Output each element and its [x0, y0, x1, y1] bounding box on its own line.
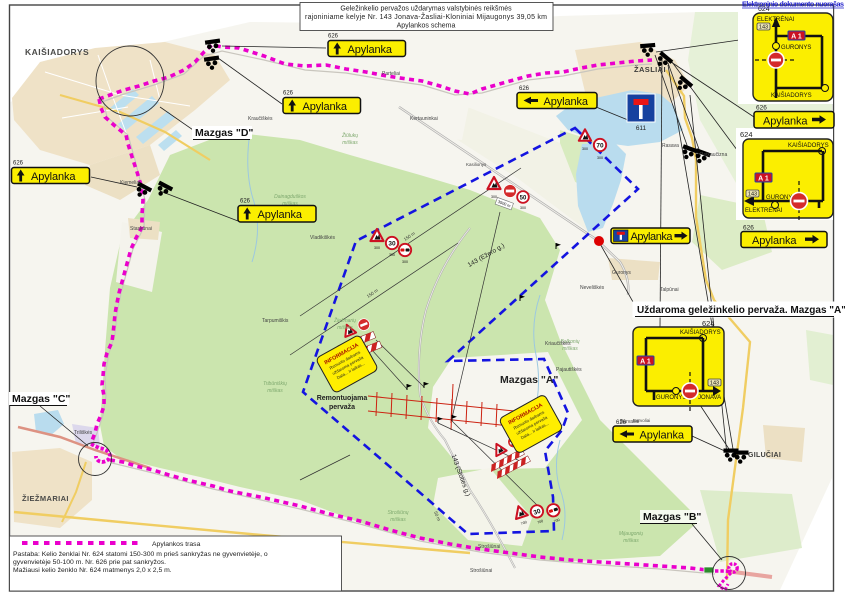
svg-text:Mažiausi kelio ženklo Nr. 624: Mažiausi kelio ženklo Nr. 624 matmenys 2… [13, 567, 172, 574]
svg-text:Geležinkelio pervažos uždaryma: Geležinkelio pervažos uždarymas valstybi… [340, 6, 512, 13]
svg-text:Triliškės: Triliškės [74, 430, 93, 436]
svg-text:626: 626 [519, 86, 530, 92]
svg-text:KAIŠIADORYS: KAIŠIADORYS [771, 92, 812, 99]
svg-text:Apylanka: Apylanka [640, 429, 685, 441]
svg-text:70: 70 [596, 143, 604, 150]
svg-text:50: 50 [520, 196, 527, 202]
svg-text:Strošiūnų: Strošiūnų [387, 510, 408, 516]
svg-text:300: 300 [402, 260, 408, 264]
svg-text:300: 300 [374, 246, 380, 250]
svg-text:KAIŠIADORYS: KAIŠIADORYS [680, 329, 721, 336]
svg-text:Kasilionys: Kasilionys [466, 162, 487, 167]
svg-text:626: 626 [756, 105, 767, 112]
svg-text:300: 300 [582, 147, 588, 151]
svg-text:KAIŠIADORYS: KAIŠIADORYS [25, 46, 89, 57]
svg-text:Apylanka: Apylanka [752, 235, 797, 247]
svg-text:Mazgas "A": Mazgas "A" [500, 374, 558, 386]
svg-text:Žiūlukų: Žiūlukų [341, 131, 358, 139]
svg-text:Tarpumiškis: Tarpumiškis [262, 318, 289, 324]
svg-text:ELEKTRĖNAI: ELEKTRĖNAI [745, 207, 783, 214]
svg-text:Mazgas "B": Mazgas "B" [643, 511, 701, 523]
svg-text:GURONYS: GURONYS [656, 395, 686, 401]
svg-text:Mazgas "C": Mazgas "C" [12, 393, 70, 405]
svg-text:143: 143 [710, 381, 719, 387]
svg-text:Pastaba: Kelio ženklai Nr. 624: Pastaba: Kelio ženklai Nr. 624 statomi 1… [13, 551, 268, 558]
svg-text:ŽASLIAI: ŽASLIAI [634, 65, 666, 74]
svg-text:Parteliai: Parteliai [382, 71, 400, 77]
svg-text:Kiemeliai: Kiemeliai [120, 180, 140, 186]
svg-text:Mijaugonių: Mijaugonių [619, 531, 643, 537]
svg-text:300: 300 [520, 206, 526, 210]
svg-text:miškas: miškas [342, 140, 358, 146]
svg-text:gyvenvietėje 50-100 m. Nr. 626: gyvenvietėje 50-100 m. Nr. 626 prie pat … [13, 559, 166, 566]
svg-text:624: 624 [740, 130, 753, 139]
svg-text:miškas: miškas [623, 538, 639, 544]
svg-text:Dainagduškos: Dainagduškos [274, 194, 306, 200]
svg-text:Mazgas "D": Mazgas "D" [195, 127, 253, 139]
svg-text:626: 626 [240, 199, 251, 205]
svg-text:miškas: miškas [267, 388, 283, 394]
svg-text:Strošiūnai: Strošiūnai [470, 568, 492, 574]
svg-text:Žiežmarių: Žiežmarių [333, 316, 356, 324]
svg-text:Rasava: Rasava [662, 143, 679, 149]
svg-text:A 1: A 1 [758, 176, 769, 183]
svg-text:Apylanka: Apylanka [303, 101, 348, 113]
svg-text:GURONYS: GURONYS [781, 45, 811, 51]
svg-text:Pajautiškės: Pajautiškės [556, 367, 582, 373]
svg-text:rajoniniame kelyje Nr. 143 Jon: rajoniniame kelyje Nr. 143 Jonava-Žaslia… [305, 12, 547, 21]
svg-text:611: 611 [636, 125, 647, 132]
svg-text:626: 626 [328, 34, 339, 40]
svg-text:626: 626 [283, 91, 294, 97]
svg-text:30: 30 [388, 241, 396, 248]
svg-text:Kertauninkai: Kertauninkai [410, 116, 438, 122]
svg-text:pervaža: pervaža [329, 404, 355, 411]
svg-text:626: 626 [13, 161, 24, 167]
svg-text:300: 300 [389, 253, 395, 257]
svg-text:Apylanka: Apylanka [544, 96, 589, 108]
svg-text:Apylankos schema: Apylankos schema [397, 23, 456, 30]
svg-text:ŽIEŽMARIAI: ŽIEŽMARIAI [22, 494, 69, 503]
svg-text:miškas: miškas [337, 325, 353, 331]
svg-text:626: 626 [743, 225, 754, 232]
svg-text:Apylanka: Apylanka [31, 171, 76, 183]
svg-text:Kriaučiškės: Kriaučiškės [545, 341, 571, 347]
svg-text:A 1: A 1 [791, 34, 802, 41]
svg-text:Apylanka: Apylanka [631, 231, 674, 243]
svg-text:Petkaučizna: Petkaučizna [700, 152, 727, 158]
svg-text:Staskūnai: Staskūnai [130, 226, 152, 232]
svg-text:Vladikiškės: Vladikiškės [310, 235, 336, 241]
svg-text:Neveliškės: Neveliškės [580, 285, 605, 291]
svg-text:626: 626 [616, 420, 627, 426]
svg-text:300: 300 [491, 195, 497, 199]
svg-text:Strošiūnai: Strošiūnai [478, 544, 500, 550]
svg-text:300: 300 [597, 156, 603, 160]
svg-text:Elektroninio dokumento nuoraša: Elektroninio dokumento nuorašas [742, 0, 844, 9]
svg-text:143: 143 [748, 192, 757, 198]
svg-text:Apylanka: Apylanka [763, 115, 808, 127]
svg-text:Apylanka: Apylanka [348, 44, 393, 56]
svg-text:Talpūnai: Talpūnai [660, 287, 679, 293]
svg-text:Remontuojama: Remontuojama [317, 395, 368, 402]
svg-text:Apylanka: Apylanka [258, 209, 303, 221]
svg-text:GILUČIAI: GILUČIAI [748, 450, 781, 459]
svg-text:A 1: A 1 [640, 359, 651, 366]
svg-text:Apylankos trasa: Apylankos trasa [152, 541, 201, 548]
svg-text:Uždaroma geležinkelio pervaža.: Uždaroma geležinkelio pervaža. Mazgas "A… [637, 305, 845, 316]
svg-text:Kraučiškės: Kraučiškės [248, 116, 273, 122]
svg-text:Tribūniškių: Tribūniškių [263, 381, 287, 387]
svg-text:JONAVA: JONAVA [698, 395, 721, 401]
svg-text:miškas: miškas [390, 517, 406, 523]
svg-text:Guronys: Guronys [612, 270, 631, 276]
svg-text:143: 143 [759, 25, 768, 31]
